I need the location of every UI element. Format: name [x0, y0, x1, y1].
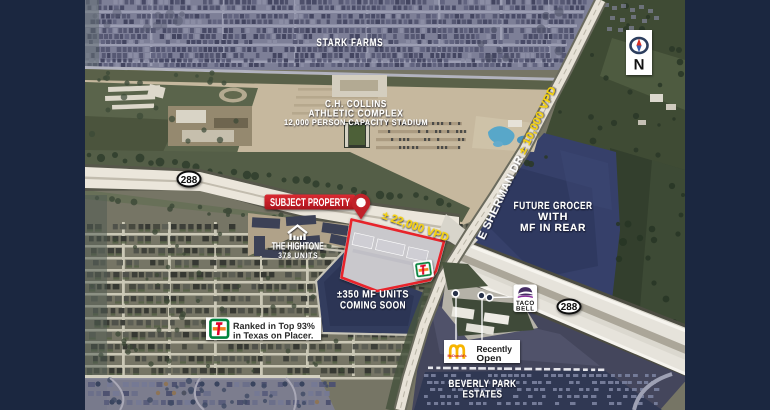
svg-text:288: 288 — [561, 302, 578, 313]
svg-text:COMING SOON: COMING SOON — [340, 300, 406, 312]
svg-text:Ranked in Top 93%: Ranked in Top 93% — [233, 321, 315, 331]
svg-text:in Texas on Placer.: in Texas on Placer. — [233, 331, 313, 341]
svg-text:MF IN REAR: MF IN REAR — [520, 222, 586, 234]
svg-text:N: N — [634, 57, 645, 74]
svg-text:12,000 PERSON CAPACITY STADIUM: 12,000 PERSON CAPACITY STADIUM — [284, 118, 428, 127]
svg-text:378 UNITS: 378 UNITS — [278, 251, 318, 260]
svg-text:Open: Open — [477, 353, 502, 363]
svg-text:SUBJECT PROPERTY: SUBJECT PROPERTY — [270, 197, 350, 209]
svg-text:McDonald’s: McDonald’s — [447, 354, 466, 358]
svg-text:ESTATES: ESTATES — [463, 389, 503, 401]
svg-text:STARK FARMS: STARK FARMS — [317, 37, 384, 49]
svg-text:BELL: BELL — [516, 306, 535, 313]
svg-text:288: 288 — [181, 175, 198, 186]
